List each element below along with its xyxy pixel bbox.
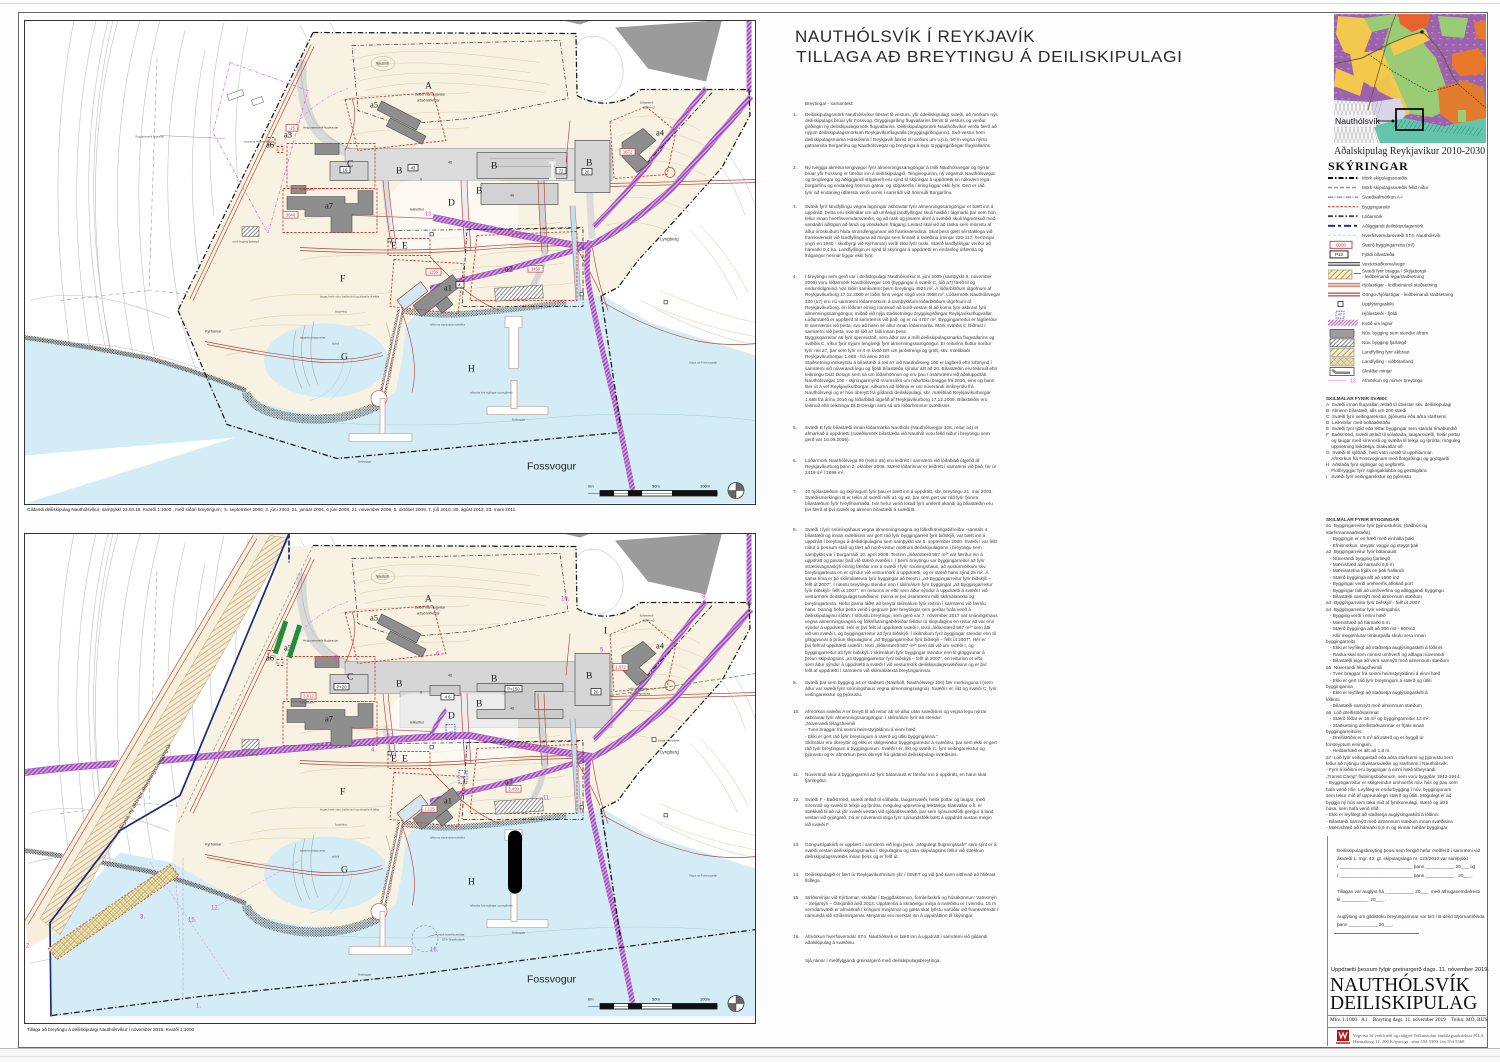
svg-text:20: 20: [585, 169, 590, 174]
svg-text:Svæði fyrir bragga / Skýjaborg: Svæði fyrir bragga / Skýjaborgir: [1362, 268, 1427, 274]
svg-text:30: 30: [461, 775, 465, 779]
svg-text:1.672: 1.672: [615, 664, 626, 669]
svg-text:Svæðaafmörkun A-I: Svæðaafmörkun A-I: [1362, 194, 1403, 200]
svg-text:1.: 1.: [196, 1003, 201, 1009]
svg-text:mögulegt flugminjasafn: mögulegt flugminjasafn: [243, 139, 274, 143]
svg-text:P<20: P<20: [337, 684, 348, 689]
svg-text:Vestursaðkoma/vegir: Vestursaðkoma/vegir: [1362, 261, 1405, 267]
svg-text:Kýrhamar: Kýrhamar: [205, 842, 222, 846]
svg-text:Kýrhamar: Kýrhamar: [205, 329, 222, 333]
svg-text:Landfylling - viðbótarland: Landfylling - viðbótarland: [1362, 358, 1414, 364]
svg-text:5.: 5.: [600, 647, 605, 653]
svg-text:forgirðing: forgirðing: [335, 308, 347, 313]
svg-text:Hverfisverndarsvæði ST4. Nauth: Hverfisverndarsvæði ST4. Nauthólsvík: [1362, 232, 1441, 238]
svg-text:7.: 7.: [478, 737, 483, 743]
svg-text:Lóðastærð: Lóðastærð: [300, 699, 315, 704]
svg-text:A: A: [425, 81, 432, 91]
svg-text:3.612: 3.612: [303, 693, 314, 698]
svg-text:D: D: [448, 198, 455, 208]
svg-text:13.: 13.: [1350, 378, 1357, 384]
svg-text:Hjólastígar - leiðbeinandi sta: Hjólastígar - leiðbeinandi staðsetning: [1362, 282, 1438, 288]
svg-text:3.459: 3.459: [508, 786, 519, 791]
svg-text:a2: a2: [505, 263, 513, 273]
svg-text:3459: 3459: [531, 266, 541, 271]
svg-text:-25: -25: [289, 125, 296, 130]
svg-text:B: B: [396, 679, 402, 689]
svg-text:bugar, heitir vötn, baðströnd: bugar, heitir vötn, baðströnd og aðstaða…: [320, 293, 380, 298]
svg-text:Nauthóll: Nauthóll: [376, 574, 389, 578]
svg-text:Aðliggjandi deiliskipulagsmörk: Aðliggjandi deiliskipulagsmörk: [1362, 222, 1424, 228]
svg-text:Stígur að Fossvogsdal: Stígur að Fossvogsdal: [689, 359, 717, 364]
svg-text:leikvöllur: leikvöllur: [410, 720, 425, 724]
svg-text:flotbryggja: flotbryggja: [512, 930, 525, 934]
svg-text:3.: 3.: [140, 914, 145, 920]
svg-text:apparleyningspuntar: apparleyningspuntar: [300, 335, 325, 339]
svg-text:flotbryggja: flotbryggja: [358, 459, 371, 463]
svg-text:B: B: [396, 166, 402, 176]
svg-text:16.: 16.: [430, 947, 439, 953]
svg-text:1672: 1672: [623, 149, 633, 154]
svg-text:P<150: P<150: [507, 686, 520, 691]
svg-text:100m: 100m: [700, 996, 711, 1001]
svg-text:aðkoma vigna sjósundsfólks: aðkoma vigna sjósundsfólks: [430, 834, 466, 839]
svg-text:46: 46: [510, 706, 514, 710]
svg-text:Núv. bygging fjarlægð: Núv. bygging fjarlægð: [1362, 339, 1407, 345]
svg-text:10.: 10.: [561, 596, 570, 602]
svg-text:sjóköl: sjóköl: [332, 341, 340, 345]
svg-text:4.: 4.: [371, 747, 376, 753]
svg-text:a6: a6: [266, 652, 274, 662]
svg-text:a7: a7: [325, 200, 333, 210]
svg-text:Núv. bygging sem stendur áfram: Núv. bygging sem stendur áfram: [1362, 330, 1428, 335]
svg-text:mörk hverfisverndar: mörk hverfisverndar: [438, 932, 465, 936]
svg-text:a5: a5: [370, 99, 378, 109]
svg-text:Göngu-/hjólastígar - leiðbeina: Göngu-/hjólastígar - leiðbeinandi staðse…: [1362, 291, 1454, 297]
svg-text:Línak-aflstöðvtls: Línak-aflstöðvtls: [658, 737, 680, 742]
svg-text:16: 16: [343, 167, 348, 172]
svg-text:5298 m2: 5298 m2: [643, 618, 655, 622]
svg-text:42: 42: [449, 730, 453, 734]
svg-text:Kvöð um lagnir: Kvöð um lagnir: [1362, 320, 1393, 326]
svg-text:20: 20: [594, 689, 599, 694]
svg-text:flotbryggja: flotbryggja: [358, 972, 371, 976]
svg-text:B: B: [491, 674, 497, 684]
svg-text:a7: a7: [325, 713, 333, 723]
svg-text:12.: 12.: [211, 905, 220, 911]
svg-text:Stígur að Fossvogsdal: Stígur að Fossvogsdal: [689, 872, 717, 877]
svg-text:E: E: [402, 754, 408, 764]
svg-text:4.: 4.: [458, 282, 462, 287]
svg-text:ætlað tiliðvistar: ætlað tiliðvistar: [417, 97, 440, 102]
svg-text:Öryggissvæði flugvallar: Öryggissvæði flugvallar: [135, 133, 164, 138]
svg-text:E: E: [391, 754, 397, 764]
svg-text:Lóðastærð: Lóðastærð: [300, 186, 315, 191]
svg-text:forgirðing: forgirðing: [335, 821, 347, 826]
svg-text:B: B: [491, 161, 497, 171]
svg-text:0000: 0000: [1336, 243, 1347, 248]
svg-text:Stærð byggingarreita (m²): Stærð byggingarreita (m²): [1362, 241, 1415, 247]
svg-text:a5: a5: [370, 612, 378, 622]
svg-text:F: F: [340, 787, 345, 797]
svg-text:Nauthólsvík: Nauthólsvík: [1335, 116, 1381, 126]
svg-text:Lóðamörk: Lóðamörk: [1362, 213, 1383, 219]
svg-text:C: C: [347, 672, 353, 682]
svg-text:a1: a1: [444, 795, 452, 805]
svg-text:aðkoma vigna sjósundsfólks: aðkoma vigna sjósundsfólks: [430, 321, 466, 326]
svg-text:Fossvogur: Fossvogur: [527, 973, 577, 985]
svg-text:Nauthóll: Nauthóll: [376, 61, 389, 65]
svg-text:72: 72: [559, 168, 564, 173]
svg-text:B: B: [476, 186, 482, 196]
svg-text:a4: a4: [656, 127, 665, 137]
svg-text:0m: 0m: [588, 483, 594, 488]
svg-text:5298 m2: 5298 m2: [643, 105, 655, 109]
svg-text:flotbryggja: flotbryggja: [512, 417, 525, 421]
svg-text:aðstaða fyrir siglingar og seg: aðstaða fyrir siglingar og seglbretti: [470, 902, 513, 907]
svg-text:Landfylling fyrir akbraut: Landfylling fyrir akbraut: [1362, 350, 1410, 355]
svg-text:A: A: [425, 594, 432, 604]
svg-text:46: 46: [510, 193, 514, 197]
svg-text:Upplýsingaskilti: Upplýsingaskilti: [1362, 302, 1394, 307]
svg-text:2.: 2.: [26, 943, 31, 949]
svg-text:H: H: [468, 877, 475, 887]
svg-text:ST4. Nauthólsvík: ST4. Nauthólsvík: [442, 937, 465, 941]
svg-text:Helgunarsvæði flugbrautar: Helgunarsvæði flugbrautar: [303, 124, 338, 129]
svg-text:46: 46: [448, 160, 452, 164]
svg-text:42: 42: [1338, 312, 1343, 317]
svg-text:9.: 9.: [702, 594, 707, 600]
svg-text:Afmörkun og númer breytinga: Afmörkun og númer breytinga: [1362, 378, 1423, 383]
svg-text:15.: 15.: [188, 917, 197, 923]
svg-text:P12: P12: [1335, 252, 1344, 257]
svg-text:6.: 6.: [436, 651, 441, 657]
svg-text:a2: a2: [505, 776, 513, 786]
svg-text:Lyngberg: Lyngberg: [660, 236, 679, 241]
svg-text:46: 46: [448, 673, 452, 677]
svg-text:a1: a1: [444, 282, 452, 292]
svg-text:E: E: [391, 241, 397, 251]
svg-text:Kornungshólka: Kornungshólka: [630, 691, 650, 695]
svg-text:Fjöldi bílastæða: Fjöldi bílastæða: [1362, 251, 1395, 257]
svg-text:sjóköl: sjóköl: [332, 854, 340, 858]
svg-text:13.: 13.: [425, 211, 433, 217]
svg-text:Lyngberg: Lyngberg: [660, 749, 679, 754]
svg-text:50m: 50m: [652, 996, 660, 1001]
svg-text:I: I: [604, 626, 607, 636]
svg-text:H: H: [468, 364, 475, 374]
svg-text:1156: 1156: [429, 269, 439, 274]
svg-text:- leiðbeinandi lega/staðsetnin: - leiðbeinandi lega/staðsetning: [1362, 273, 1425, 279]
svg-text:8.: 8.: [334, 655, 339, 661]
svg-text:svæði inan flugvalar: svæði inan flugvalar: [415, 604, 446, 609]
svg-text:B: B: [586, 158, 592, 168]
svg-text:Mörk skipulagssvæðis: Mörk skipulagssvæðis: [1362, 175, 1408, 181]
svg-text:ætlað tiliðvistar: ætlað tiliðvistar: [417, 610, 440, 615]
svg-text:mörk fráflands: mörk fráflands: [628, 686, 648, 690]
svg-text:apparleyningspuntar: apparleyningspuntar: [300, 848, 325, 852]
svg-text:G: G: [341, 352, 348, 362]
svg-text:aðstaða fyrir siglingar og seg: aðstaða fyrir siglingar og seglbretti: [470, 389, 513, 394]
svg-text:3540: 3540: [286, 212, 296, 217]
svg-text:Hjólastæði - fjöldi: Hjólastæði - fjöldi: [1362, 310, 1397, 316]
svg-text:lóðastærð: lóðastærð: [640, 99, 654, 104]
svg-text:Fossvogur: Fossvogur: [527, 460, 577, 472]
svg-text:4 6: 4 6: [445, 694, 451, 699]
svg-text:50m: 50m: [652, 483, 660, 488]
svg-text:leikvöllur: leikvöllur: [410, 207, 425, 211]
svg-text:G: G: [341, 865, 348, 875]
svg-text:a4: a4: [656, 640, 665, 650]
svg-text:E: E: [402, 241, 408, 251]
svg-text:mörk legging fjarlægð: mörk legging fjarlægð: [232, 238, 259, 243]
svg-text:mörk legging fjarlægð: mörk legging fjarlægð: [232, 751, 259, 756]
svg-text:svæði inan flugvalar: svæði inan flugvalar: [415, 91, 446, 96]
svg-text:1.125: 1.125: [424, 806, 435, 811]
svg-text:13.: 13.: [387, 733, 396, 739]
svg-text:Mörk skipulagssvæðis felld nið: Mörk skipulagssvæðis felld niður: [1362, 184, 1429, 190]
svg-text:43: 43: [411, 165, 416, 170]
svg-text:Byggingareitir: Byggingareitir: [1362, 204, 1391, 209]
svg-text:B: B: [476, 699, 482, 709]
svg-text:F: F: [340, 274, 345, 284]
svg-text:6: 6: [420, 177, 422, 181]
svg-text:11.: 11.: [543, 795, 551, 801]
svg-text:Skráðar minjar: Skráðar minjar: [1362, 368, 1392, 374]
svg-text:bugar, heitir vötn, baðströnd: bugar, heitir vötn, baðströnd og aðstaða…: [320, 806, 380, 811]
svg-text:100m: 100m: [700, 483, 711, 488]
svg-text:Helgunarsvæði flugbrautar: Helgunarsvæði flugbrautar: [303, 637, 338, 642]
svg-text:B: B: [586, 671, 592, 681]
svg-text:6: 6: [420, 690, 422, 694]
svg-text:D: D: [448, 711, 455, 721]
svg-text:lóðastærð: lóðastærð: [640, 612, 654, 617]
svg-text:0m: 0m: [588, 996, 594, 1001]
